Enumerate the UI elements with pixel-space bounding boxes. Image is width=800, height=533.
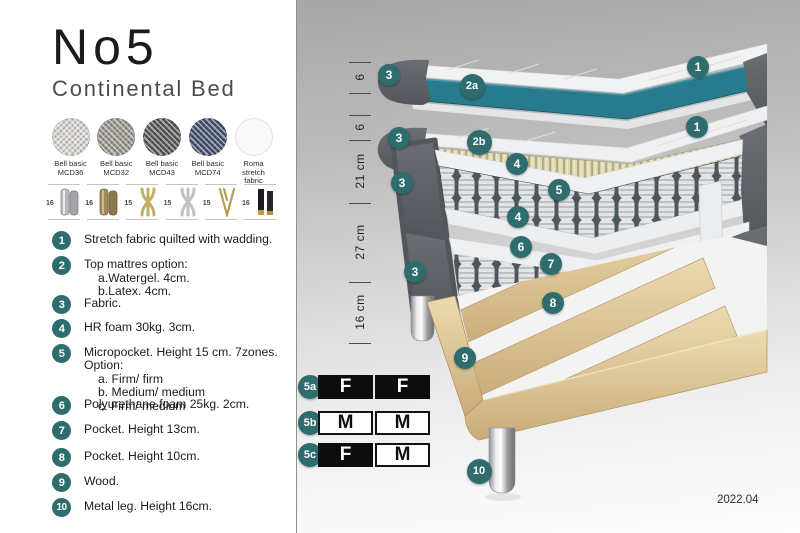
legend-subitem: a.Watergel. 4cm. <box>98 272 287 284</box>
legend-number-badge: 9 <box>52 473 71 492</box>
legend-number-badge: 3 <box>52 295 71 314</box>
ruler-label: 16 cm <box>353 282 367 342</box>
legend-number-badge: 8 <box>52 448 71 467</box>
diagram-badge-10: 10 <box>467 459 492 484</box>
diagram-badge-2b: 2b <box>467 130 492 155</box>
legend-number-badge: 7 <box>52 421 71 440</box>
diagram-badge-4: 4 <box>507 206 529 228</box>
firmness-cell: F <box>375 375 430 399</box>
firmness-cell: M <box>375 443 430 467</box>
legend-number-badge: 2 <box>52 256 71 275</box>
legend-number-badge: 10 <box>52 498 71 517</box>
legend-number-badge: 5 <box>52 344 71 363</box>
diagram-badge-1: 1 <box>687 56 709 78</box>
legend-number-badge: 1 <box>52 231 71 250</box>
firmness-cell: M <box>318 411 373 435</box>
legend-number-badge: 4 <box>52 319 71 338</box>
diagram-badge-2a: 2a <box>460 74 485 99</box>
diagram-badge-3: 3 <box>378 64 400 86</box>
legend-subitem: b.Latex. 4cm. <box>98 285 287 297</box>
diagram-badge-7: 7 <box>540 253 562 275</box>
version-label: 2022.04 <box>717 494 759 506</box>
legend-list: 1Stretch fabric quilted with wadding.2To… <box>0 0 296 533</box>
legend-text: Pocket. Height 10cm. <box>84 450 287 463</box>
product-sheet: No5 Continental Bed Bell basicMCD36Bell … <box>0 0 800 533</box>
diagram-badge-3: 3 <box>391 172 413 194</box>
legend-text: Metal leg. Height 16cm. <box>84 500 287 513</box>
legend-item-8: 8Pocket. Height 10cm. <box>52 450 287 463</box>
legend-item-2: 2Top mattres option:a.Watergel. 4cm.b.La… <box>52 258 287 298</box>
diagram-badge-6: 6 <box>510 236 532 258</box>
legend-text: Fabric. <box>84 297 287 310</box>
firmness-cell: F <box>318 443 373 467</box>
diagram-badge-3: 3 <box>404 261 426 283</box>
legend-item-9: 9Wood. <box>52 475 287 488</box>
legend-item-7: 7Pocket. Height 13cm. <box>52 423 287 436</box>
legend-subitem: a. Firm/ firm <box>98 373 287 385</box>
legend-number-badge: 6 <box>52 396 71 415</box>
bed-diagram-panel: 6621 cm27 cm16 cm 32a132b143546738910 5a… <box>296 0 800 533</box>
legend-item-10: 10Metal leg. Height 16cm. <box>52 500 287 513</box>
diagram-badge-4: 4 <box>506 153 528 175</box>
legend-item-4: 4HR foam 30kg. 3cm. <box>52 321 287 334</box>
diagram-badge-8: 8 <box>542 292 564 314</box>
legend-text: Pocket. Height 13cm. <box>84 423 287 436</box>
diagram-badge-3: 3 <box>388 127 410 149</box>
legend-text: Wood. <box>84 475 287 488</box>
legend-item-3: 3Fabric. <box>52 297 287 310</box>
diagram-badge-1: 1 <box>686 116 708 138</box>
legend-text: Micropocket. Height 15 cm. 7zones. Optio… <box>84 346 287 372</box>
diagram-badge-9: 9 <box>454 347 476 369</box>
legend-text: Top mattres option: <box>84 258 287 271</box>
legend-item-6: 6Polyurethane foam 25kg. 2cm. <box>52 398 287 411</box>
firmness-cell: M <box>375 411 430 435</box>
ruler-tick <box>349 343 371 344</box>
info-column: No5 Continental Bed Bell basicMCD36Bell … <box>0 0 296 533</box>
ruler-tick <box>349 203 371 204</box>
ruler-label: 27 cm <box>353 212 367 272</box>
legend-text: Stretch fabric quilted with wadding. <box>84 233 287 246</box>
metal-leg-front <box>489 428 515 493</box>
legend-text: Polyurethane foam 25kg. 2cm. <box>84 398 287 411</box>
top-mattress-layer <box>378 44 767 129</box>
ruler-label: 21 cm <box>353 141 367 201</box>
legend-text: HR foam 30kg. 3cm. <box>84 321 287 334</box>
legend-item-1: 1Stretch fabric quilted with wadding. <box>52 233 287 246</box>
diagram-badge-5: 5 <box>548 179 570 201</box>
firmness-cell: F <box>318 375 373 399</box>
